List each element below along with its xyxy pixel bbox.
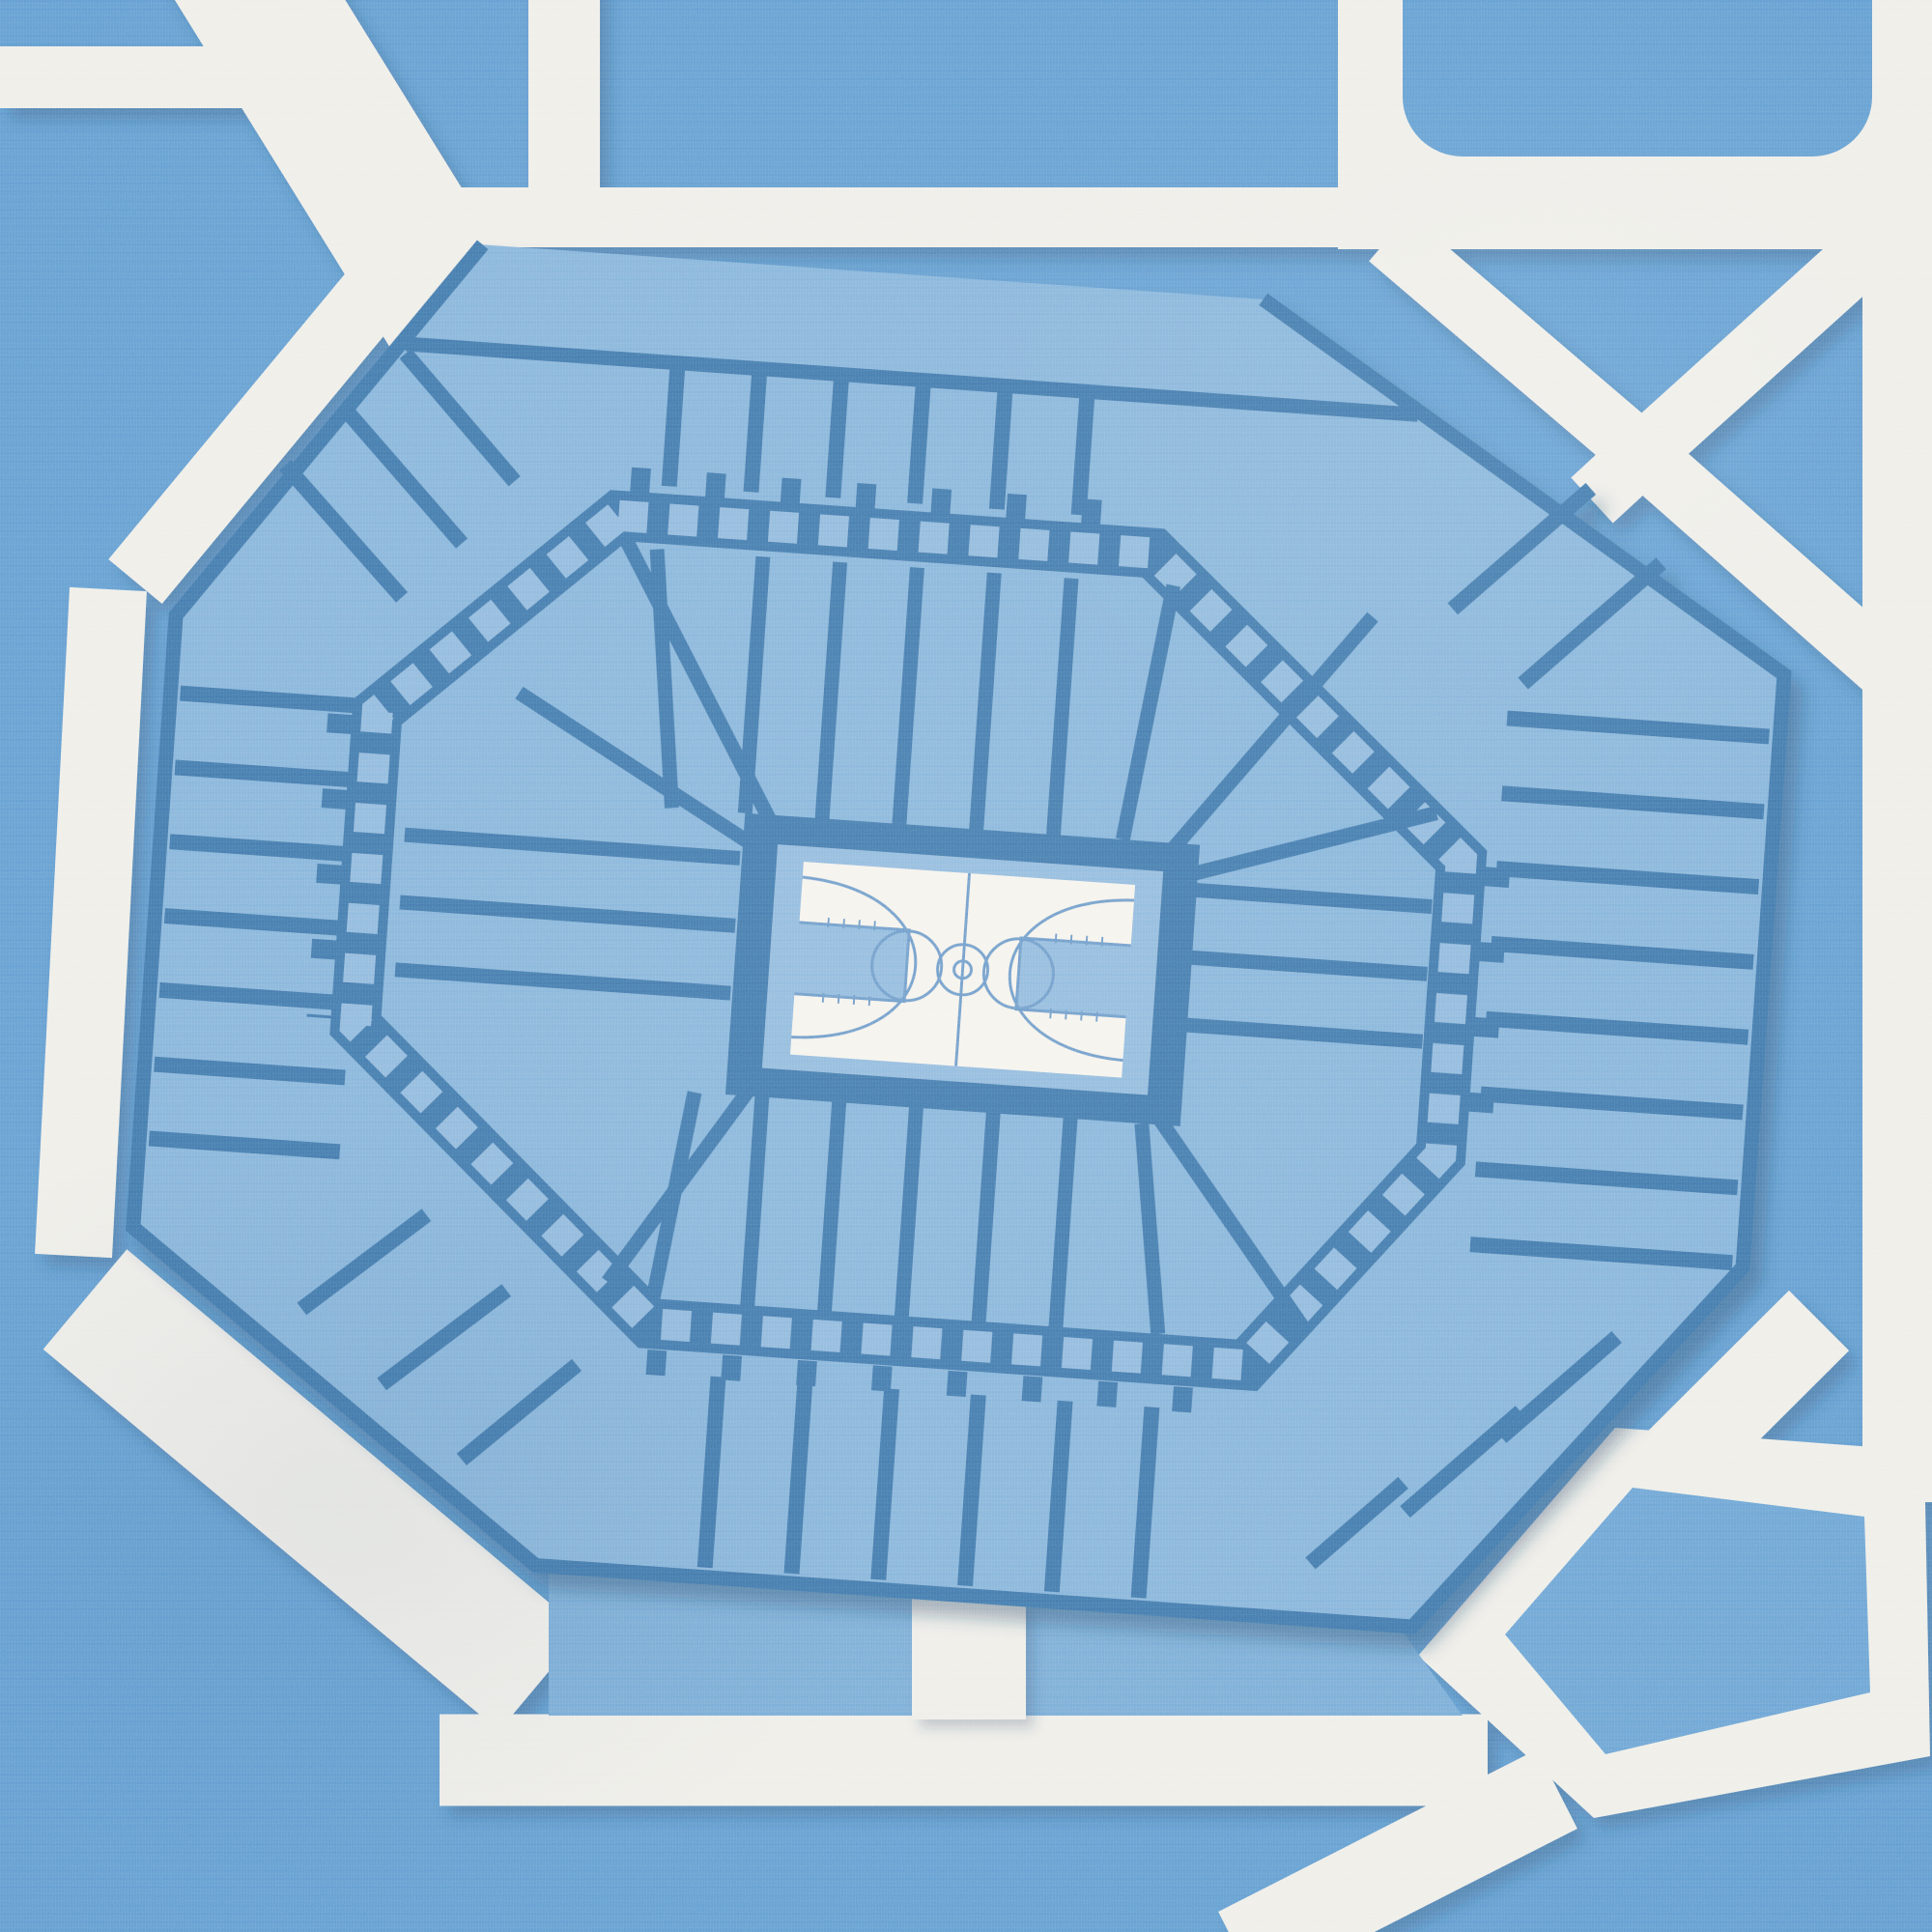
paper-texture-overlay [0,0,1932,1932]
map-print: Top-down seating map of an octagonal bas… [0,0,1932,1932]
arena-map-svg: Top-down seating map of an octagonal bas… [0,0,1932,1932]
